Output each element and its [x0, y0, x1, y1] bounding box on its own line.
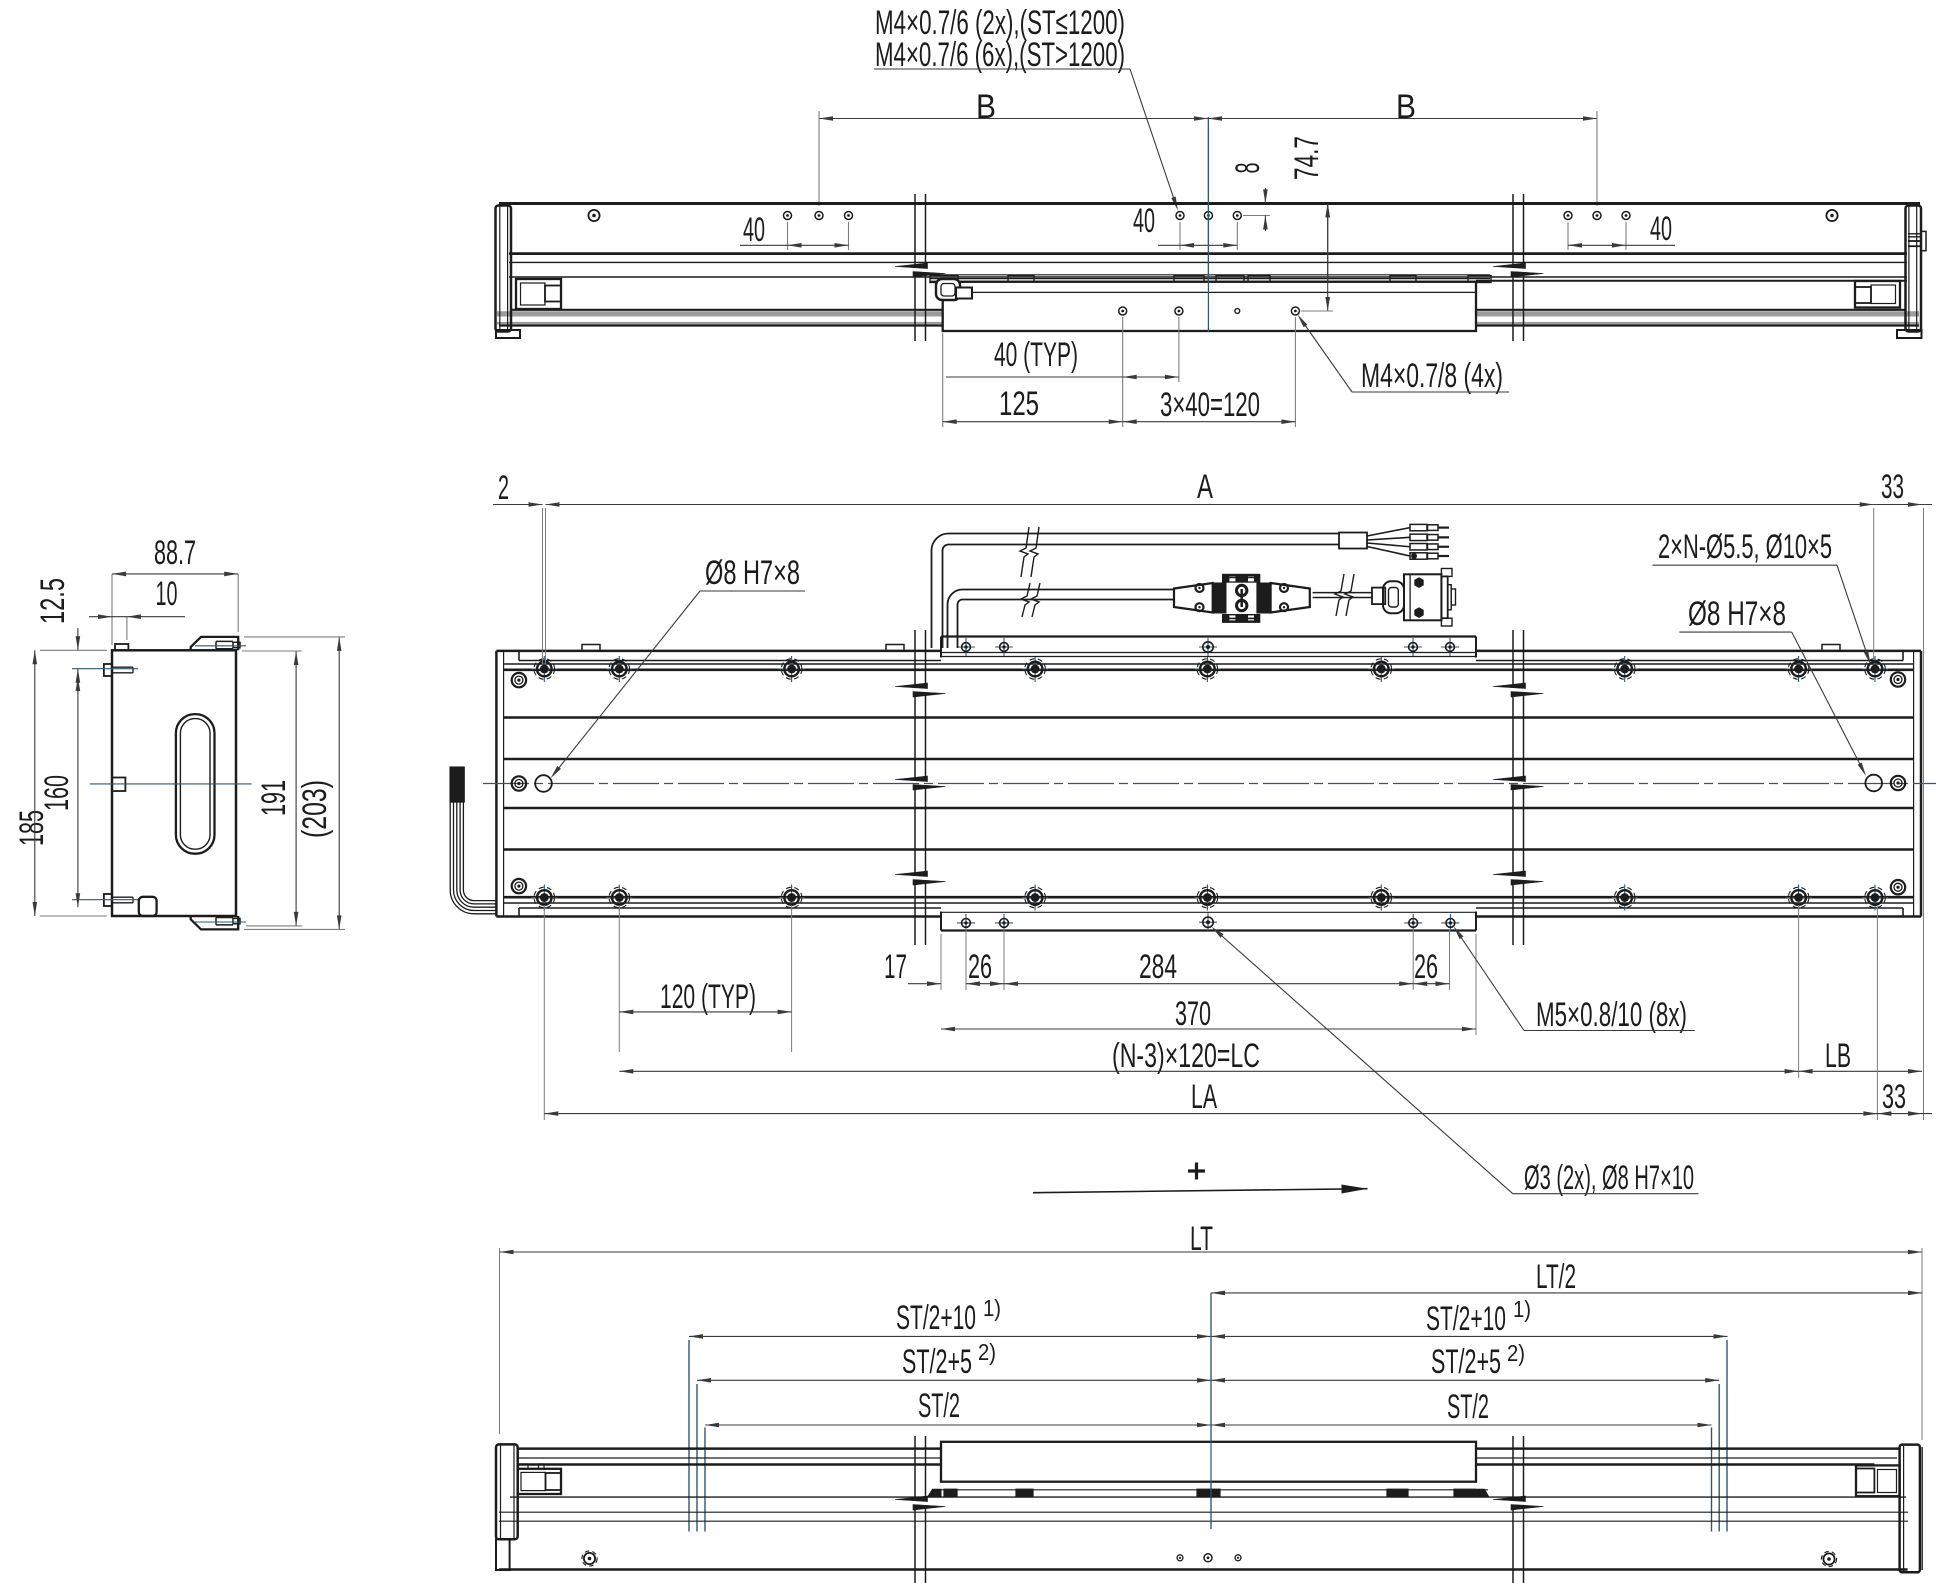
svg-text:M5×0.8/10 (8x): M5×0.8/10 (8x): [1536, 996, 1687, 1034]
svg-text:2×N-Ø5.5, Ø10×5: 2×N-Ø5.5, Ø10×5: [1658, 528, 1832, 566]
svg-text:160: 160: [38, 775, 76, 811]
svg-text:B: B: [976, 88, 996, 126]
svg-text:185: 185: [13, 810, 51, 846]
svg-text:191: 191: [255, 780, 293, 816]
svg-text:(N-3)×120=LC: (N-3)×120=LC: [1112, 1037, 1260, 1075]
svg-text:Ø3 (2x), Ø8 H7×10: Ø3 (2x), Ø8 H7×10: [1524, 1159, 1694, 1197]
svg-text:125: 125: [999, 385, 1039, 423]
svg-text:10: 10: [156, 575, 178, 613]
svg-text:ST/2+10: ST/2+10: [896, 1299, 976, 1337]
svg-text:12.5: 12.5: [34, 578, 72, 624]
svg-text:3×40=120: 3×40=120: [1160, 386, 1260, 424]
svg-text:17: 17: [884, 948, 907, 986]
svg-text:A: A: [1197, 468, 1213, 506]
svg-text:8: 8: [1229, 163, 1267, 174]
svg-text:2): 2): [1507, 1340, 1525, 1366]
svg-text:370: 370: [1175, 995, 1211, 1033]
svg-text:(203): (203): [296, 780, 334, 838]
svg-text:1): 1): [1513, 1296, 1531, 1322]
svg-text:Ø8 H7×8: Ø8 H7×8: [1688, 595, 1786, 633]
svg-text:LT/2: LT/2: [1536, 1258, 1576, 1296]
svg-text:33: 33: [1882, 1078, 1906, 1116]
svg-text:74.7: 74.7: [1288, 136, 1326, 180]
svg-text:ST/2+10: ST/2+10: [1426, 1300, 1506, 1338]
svg-text:284: 284: [1139, 948, 1177, 986]
svg-text:B: B: [1396, 88, 1416, 126]
svg-text:2: 2: [498, 469, 509, 507]
svg-text:ST/2+5: ST/2+5: [902, 1343, 972, 1381]
svg-text:40: 40: [1133, 202, 1155, 240]
svg-text:88.7: 88.7: [154, 534, 196, 572]
svg-text:26: 26: [968, 948, 992, 986]
svg-text:M4×0.7/8 (4x): M4×0.7/8 (4x): [1361, 357, 1503, 395]
svg-text:1): 1): [983, 1295, 1001, 1321]
svg-text:120 (TYP): 120 (TYP): [660, 978, 756, 1016]
svg-text:ST/2+5: ST/2+5: [1431, 1343, 1501, 1381]
svg-text:2): 2): [978, 1339, 996, 1365]
svg-text:33: 33: [1881, 468, 1904, 506]
svg-text:ST/2: ST/2: [1447, 1388, 1489, 1426]
svg-text:LB: LB: [1825, 1037, 1851, 1075]
svg-text:Ø8 H7×8: Ø8 H7×8: [705, 554, 800, 592]
svg-text:M4×0.7/6 (6x),(ST>1200): M4×0.7/6 (6x),(ST>1200): [875, 36, 1125, 74]
svg-text:40 (TYP): 40 (TYP): [994, 336, 1078, 374]
svg-text:LA: LA: [1191, 1078, 1217, 1116]
svg-text:40: 40: [1650, 210, 1672, 248]
svg-text:26: 26: [1414, 948, 1438, 986]
svg-text:ST/2: ST/2: [918, 1387, 960, 1425]
svg-text:40: 40: [743, 211, 765, 249]
